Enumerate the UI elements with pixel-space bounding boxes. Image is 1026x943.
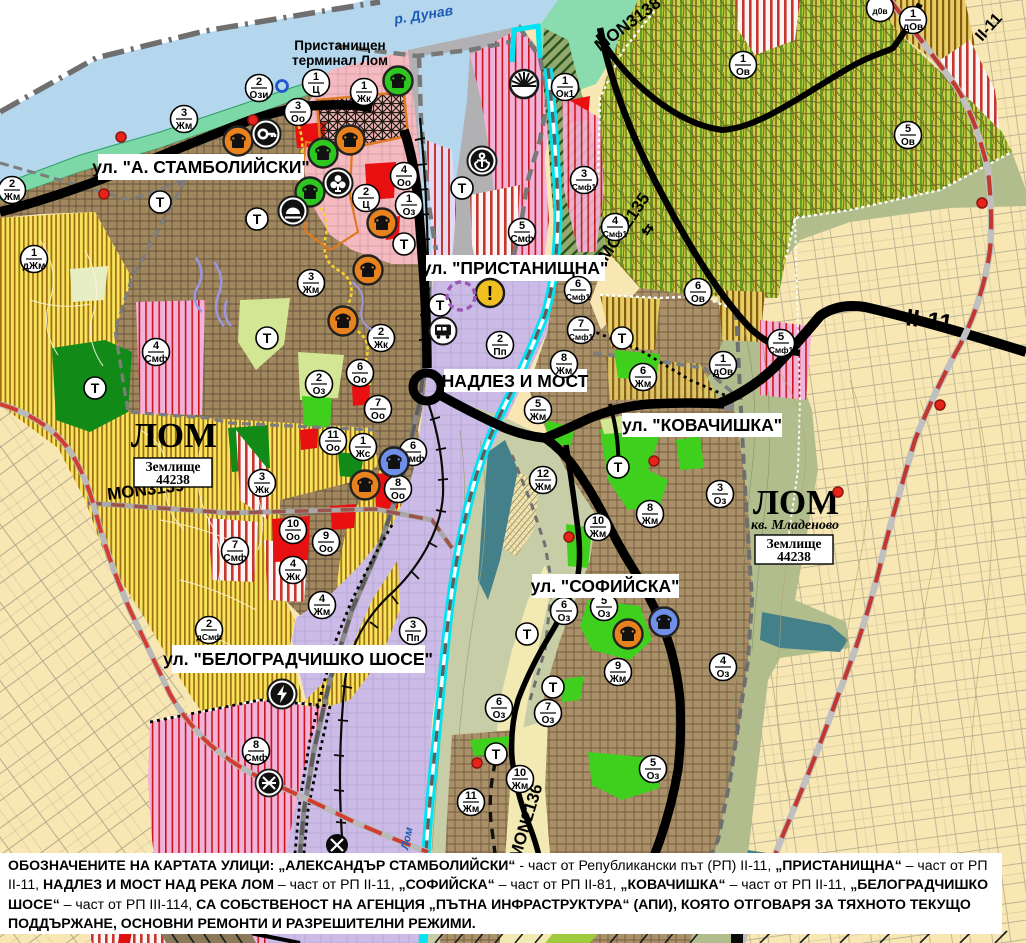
svg-text:1: 1: [740, 53, 746, 65]
svg-text:8: 8: [561, 352, 567, 364]
svg-text:Смф1: Смф1: [603, 229, 628, 239]
svg-text:6: 6: [561, 599, 567, 611]
svg-text:6: 6: [496, 696, 502, 708]
svg-text:Т: Т: [91, 380, 100, 396]
svg-text:Оз: Оз: [717, 669, 730, 680]
svg-text:2: 2: [206, 618, 212, 630]
svg-text:6: 6: [640, 365, 646, 377]
svg-text:Оо: Оо: [391, 491, 405, 502]
svg-text:2: 2: [256, 76, 262, 88]
svg-text:Жм: Жм: [634, 379, 651, 390]
svg-text:4: 4: [319, 593, 326, 605]
svg-text:7: 7: [375, 397, 381, 409]
svg-text:5: 5: [778, 331, 784, 343]
svg-text:5: 5: [650, 757, 656, 769]
svg-text:7: 7: [578, 318, 584, 330]
svg-text:дОв: дОв: [713, 367, 733, 378]
svg-text:10: 10: [514, 767, 526, 779]
svg-text:Оз: Оз: [493, 710, 506, 721]
svg-text:Оо: Оо: [319, 544, 333, 555]
svg-text:Жк: Жк: [373, 340, 389, 351]
svg-text:ул. "ПРИСТАНИЩНА": ул. "ПРИСТАНИЩНА": [422, 258, 609, 278]
svg-text:Т: Т: [523, 626, 532, 642]
svg-text:Т: Т: [492, 746, 501, 762]
svg-text:Оо: Оо: [353, 375, 367, 386]
svg-text:9: 9: [615, 660, 621, 672]
svg-text:Ов: Ов: [736, 67, 750, 78]
svg-text:Ози: Ози: [250, 90, 269, 101]
svg-text:Жм: Жм: [529, 412, 546, 423]
svg-text:Смф: Смф: [244, 752, 267, 764]
svg-text:4: 4: [401, 164, 408, 176]
svg-text:ЛОМ: ЛОМ: [753, 483, 839, 522]
svg-text:Оо: Оо: [371, 411, 385, 422]
svg-text:ул. "СОФИЙСКА": ул. "СОФИЙСКА": [531, 575, 680, 596]
svg-text:44238: 44238: [156, 472, 190, 487]
svg-text:5: 5: [535, 398, 541, 410]
svg-text:Оз: Оз: [313, 386, 326, 397]
svg-text:Т: Т: [253, 211, 262, 227]
svg-text:ул. "БЕЛОГРАДЧИШКО ШОСЕ": ул. "БЕЛОГРАДЧИШКО ШОСЕ": [163, 649, 433, 669]
svg-text:6: 6: [357, 361, 363, 373]
svg-text:дСмф: дСмф: [196, 632, 222, 642]
svg-text:Ов: Ов: [901, 137, 915, 148]
svg-text:Смф1: Смф1: [572, 182, 597, 192]
svg-text:1: 1: [361, 80, 367, 92]
svg-text:Т: Т: [549, 679, 558, 695]
svg-text:11: 11: [465, 790, 477, 802]
svg-text:терминал Лом: терминал Лом: [292, 53, 388, 68]
svg-text:Т: Т: [263, 330, 272, 346]
svg-text:44238: 44238: [777, 549, 811, 564]
svg-text:6: 6: [410, 440, 416, 452]
svg-text:Жм: Жм: [462, 804, 479, 815]
svg-text:Смф1: Смф1: [566, 292, 591, 302]
svg-text:Жм: Жм: [302, 285, 319, 296]
svg-text:Жм: Жм: [175, 121, 192, 132]
svg-text:Оо: Оо: [286, 532, 300, 543]
svg-text:Жк: Жк: [254, 485, 270, 496]
svg-text:Оз: Оз: [542, 715, 555, 726]
svg-text:Оо: Оо: [326, 443, 340, 454]
svg-text:ул. "А. СТАМБОЛИЙСКИ": ул. "А. СТАМБОЛИЙСКИ": [92, 156, 309, 177]
svg-text:7: 7: [232, 539, 238, 551]
svg-text:Жм: Жм: [641, 516, 658, 527]
svg-text:1: 1: [562, 75, 568, 87]
svg-text:д0в: д0в: [872, 6, 887, 16]
svg-text:Т: Т: [436, 297, 445, 313]
svg-text:1: 1: [910, 8, 916, 20]
svg-text:Пристанищен: Пристанищен: [294, 38, 385, 53]
svg-text:4: 4: [153, 340, 160, 352]
svg-text:2: 2: [316, 372, 322, 384]
svg-text:Жк: Жк: [356, 94, 372, 105]
svg-text:7: 7: [545, 701, 551, 713]
svg-text:Смф: Смф: [144, 353, 167, 365]
svg-text:Жм: Жм: [511, 781, 528, 792]
svg-text:5: 5: [905, 123, 911, 135]
svg-text:3: 3: [259, 471, 265, 483]
svg-text:3: 3: [717, 482, 723, 494]
svg-text:3: 3: [308, 271, 314, 283]
svg-text:Оз: Оз: [598, 609, 611, 620]
svg-text:4: 4: [720, 655, 727, 667]
svg-text:дОв: дОв: [903, 22, 923, 33]
svg-text:1: 1: [31, 247, 37, 259]
svg-text:Пп: Пп: [493, 347, 506, 358]
svg-text:2: 2: [363, 186, 369, 198]
svg-text:5: 5: [519, 220, 525, 232]
svg-text:10: 10: [592, 515, 604, 527]
svg-text:Жм: Жм: [313, 607, 330, 618]
svg-text:9: 9: [323, 530, 329, 542]
svg-text:Оз: Оз: [714, 496, 727, 507]
svg-text:6: 6: [575, 278, 581, 290]
svg-text:Ов: Ов: [691, 294, 705, 305]
svg-text:Смф: Смф: [223, 552, 246, 564]
svg-text:8: 8: [395, 477, 401, 489]
svg-text:1: 1: [720, 353, 726, 365]
svg-text:Смф: Смф: [510, 233, 533, 245]
svg-text:Т: Т: [618, 330, 627, 346]
svg-text:Т: Т: [156, 194, 165, 210]
svg-text:Оз: Оз: [558, 613, 571, 624]
svg-text:ул. "КОВАЧИШКА": ул. "КОВАЧИШКА": [622, 415, 782, 435]
svg-text:Т: Т: [458, 180, 467, 196]
svg-text:3: 3: [410, 619, 416, 631]
svg-text:2: 2: [378, 326, 384, 338]
svg-text:11: 11: [327, 429, 339, 441]
svg-text:4: 4: [290, 558, 297, 570]
svg-text:Ц: Ц: [312, 85, 320, 96]
svg-text:Жс: Жс: [355, 449, 371, 460]
svg-text:Жм: Жм: [555, 366, 572, 377]
svg-text:!: !: [487, 283, 494, 305]
svg-text:8: 8: [647, 502, 653, 514]
svg-text:12: 12: [537, 468, 549, 480]
svg-text:3: 3: [295, 100, 301, 112]
svg-text:1: 1: [406, 193, 412, 205]
svg-text:Ц: Ц: [362, 200, 370, 211]
svg-text:1: 1: [360, 435, 366, 447]
svg-text:кв. Младеново: кв. Младеново: [751, 518, 839, 533]
svg-text:10: 10: [287, 518, 299, 530]
svg-text:Т: Т: [614, 459, 623, 475]
svg-text:Оо: Оо: [291, 114, 305, 125]
svg-text:Т: Т: [400, 236, 409, 252]
svg-text:дЖм: дЖм: [23, 261, 46, 272]
svg-text:Ок1: Ок1: [556, 89, 575, 100]
svg-text:Оз: Оз: [647, 771, 660, 782]
svg-text:Пп: Пп: [406, 633, 419, 644]
svg-text:ЛОМ: ЛОМ: [131, 416, 217, 455]
svg-text:4: 4: [612, 215, 619, 227]
svg-text:6: 6: [695, 280, 701, 292]
svg-text:Жм: Жм: [609, 674, 626, 685]
svg-text:Смф1: Смф1: [769, 345, 794, 355]
svg-text:2: 2: [9, 178, 15, 190]
svg-text:8: 8: [253, 739, 259, 751]
svg-text:Жк: Жк: [285, 572, 301, 583]
svg-text:Жм: Жм: [3, 192, 20, 203]
svg-text:Жм: Жм: [589, 529, 606, 540]
svg-text:1: 1: [313, 71, 319, 83]
svg-text:Оо: Оо: [397, 178, 411, 189]
svg-text:3: 3: [181, 107, 187, 119]
svg-text:2: 2: [497, 333, 503, 345]
svg-text:3: 3: [581, 168, 587, 180]
svg-text:Смф1: Смф1: [569, 332, 594, 342]
svg-text:Жм: Жм: [534, 482, 551, 493]
svg-text:Оз: Оз: [403, 207, 416, 218]
